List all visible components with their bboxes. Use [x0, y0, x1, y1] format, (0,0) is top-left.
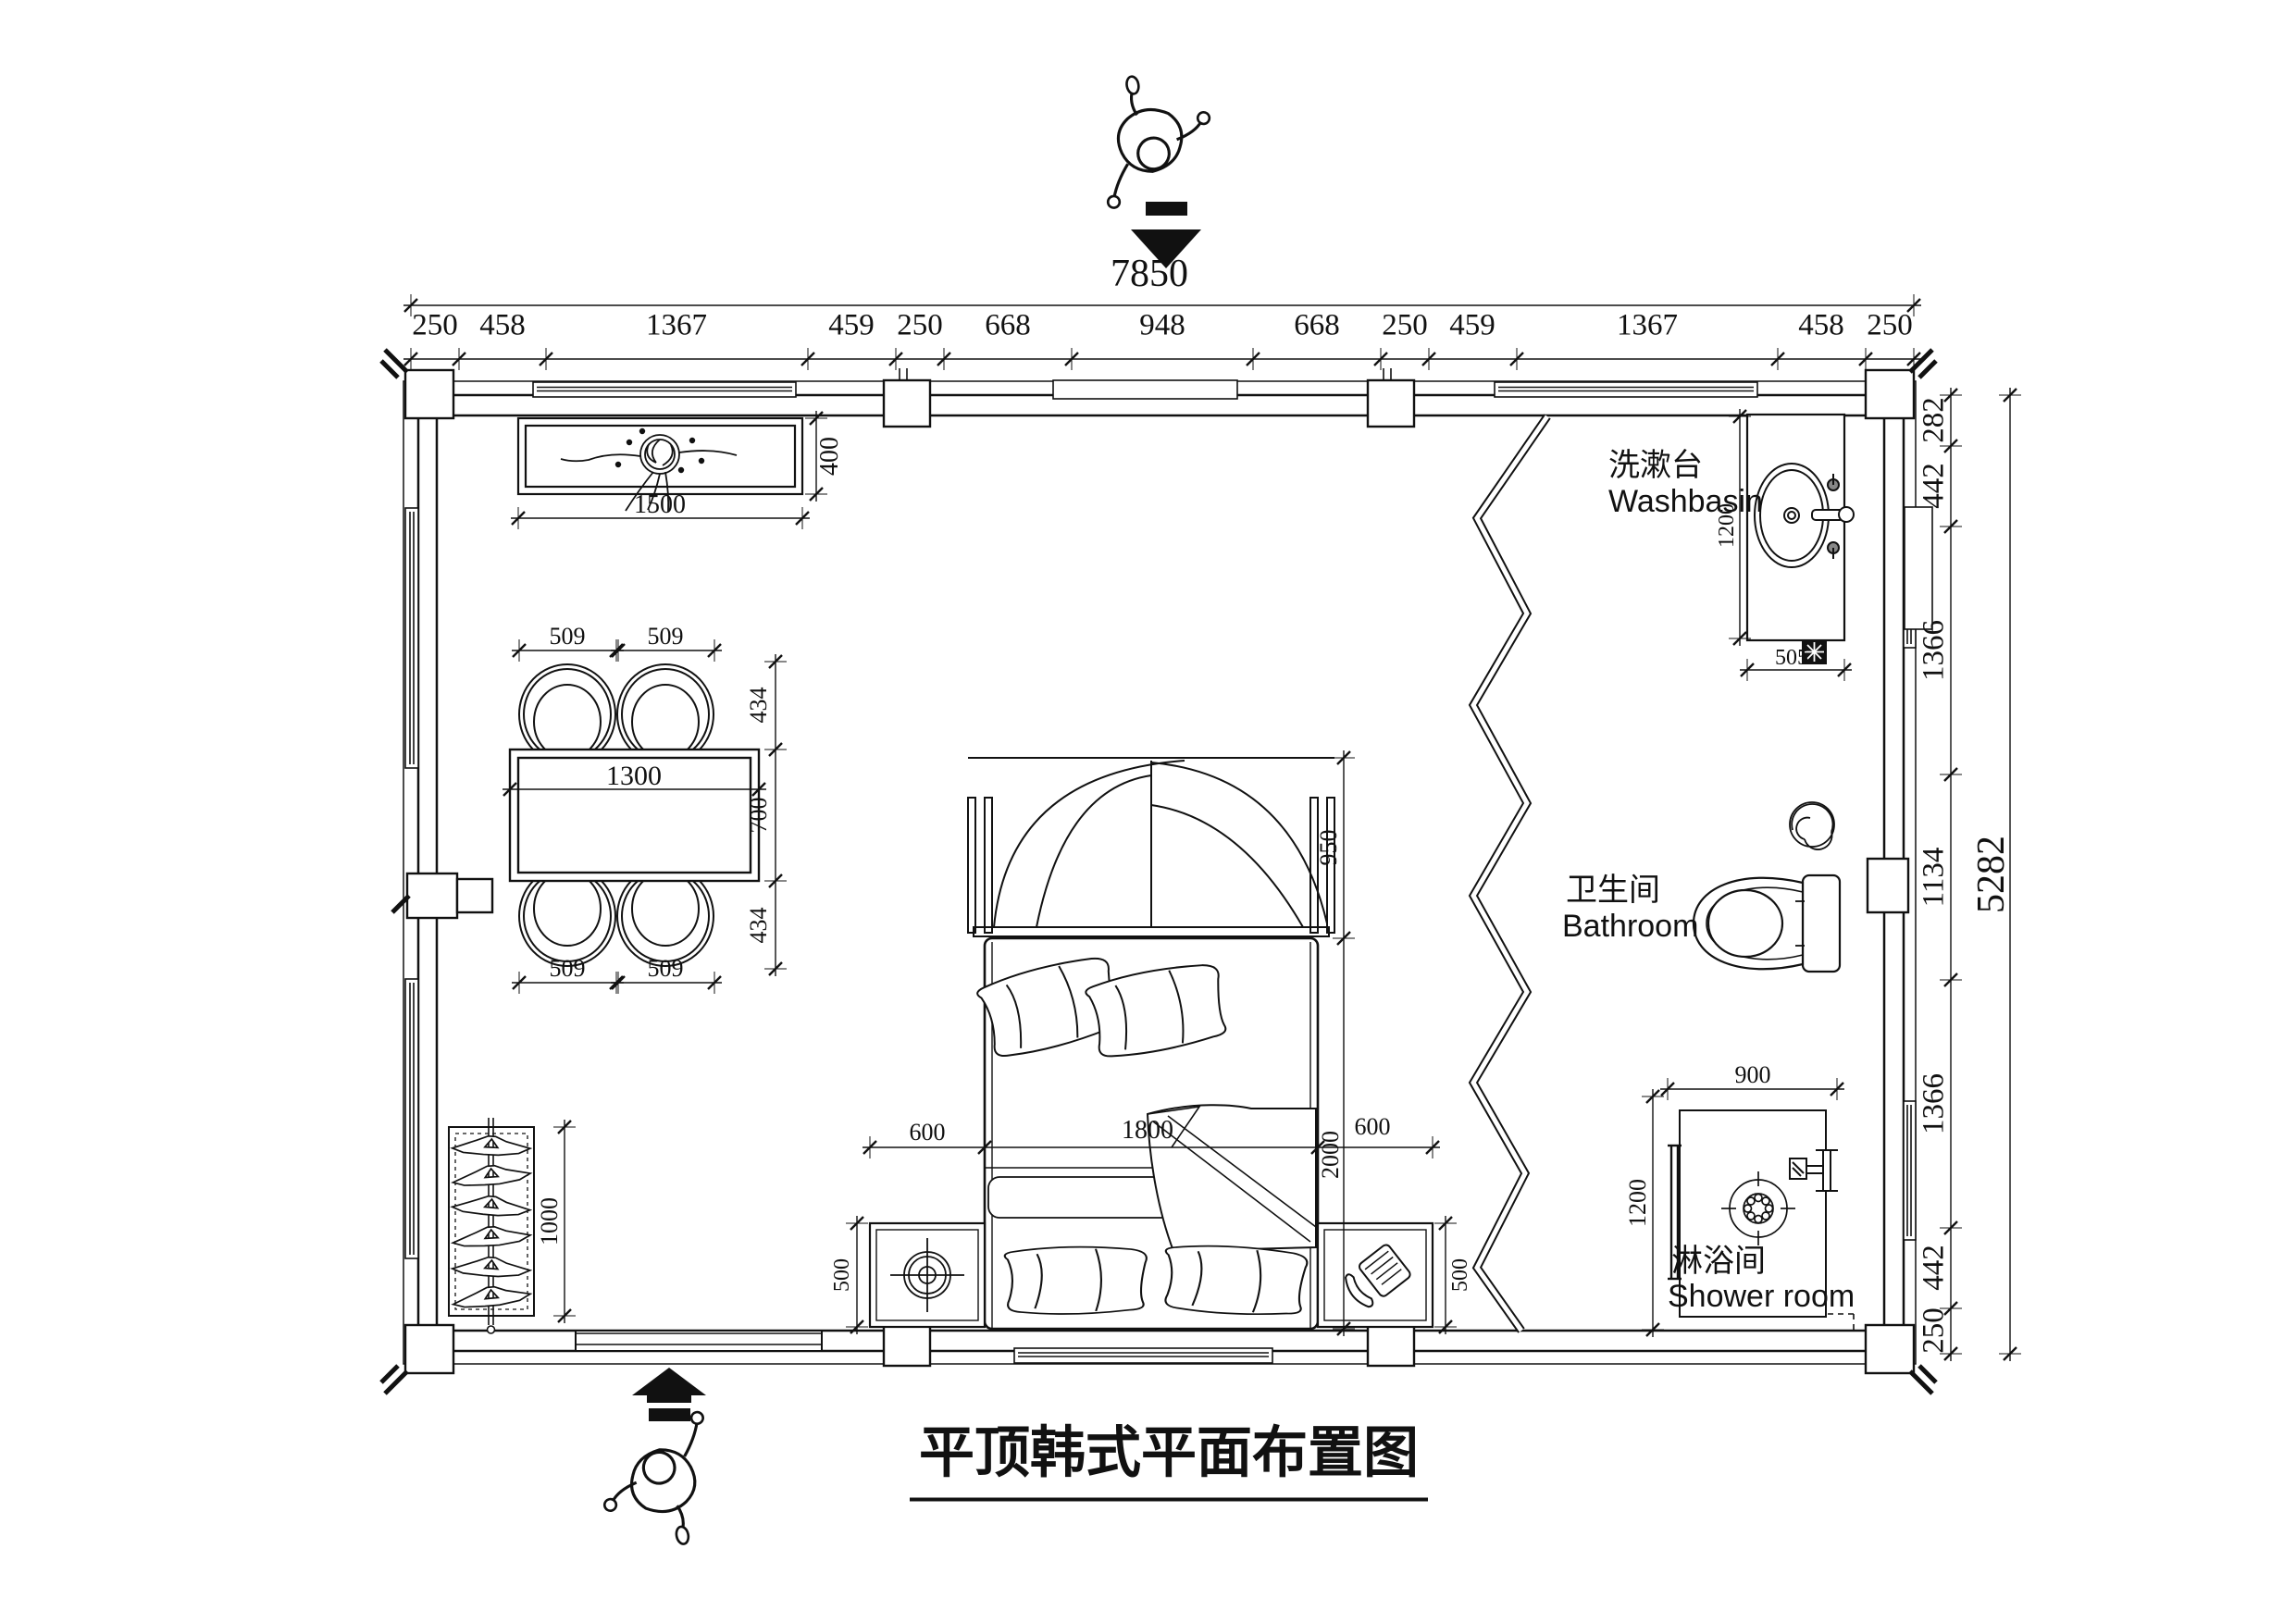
- dim-chair-bottom-right: 509: [648, 957, 684, 981]
- label-bathroom-en: Bathroom: [1562, 911, 1698, 942]
- dim-top-4: 250: [897, 311, 943, 341]
- fan-swirl-icon: [1790, 802, 1834, 849]
- dim-top-3: 459: [828, 311, 875, 341]
- dim-wardrobe-length: 1000: [538, 1197, 562, 1245]
- dim-top-12: 250: [1867, 311, 1913, 341]
- dim-chair-top-left: 509: [550, 625, 586, 649]
- dim-total-width: 7850: [1111, 254, 1188, 293]
- dim-top-0: 250: [412, 311, 458, 341]
- label-shower-zh: 淋浴间: [1671, 1245, 1766, 1277]
- dim-top-8: 250: [1382, 311, 1428, 341]
- dim-top-5: 668: [985, 311, 1031, 341]
- nightstand-right: [1318, 1223, 1433, 1327]
- dim-right-5: 442: [1919, 1245, 1950, 1291]
- dim-nightstand-right: 500: [1449, 1258, 1471, 1292]
- washbasin-counter: [1747, 415, 1854, 664]
- dim-bed-right-gap: 600: [1355, 1115, 1391, 1139]
- dim-chair-top-right: 509: [648, 625, 684, 649]
- wardrobe-rack: [449, 1118, 534, 1333]
- console-cabinet: [518, 418, 802, 494]
- dim-washbasin-width: 505: [1775, 647, 1808, 669]
- dim-bed-left-gap: 600: [910, 1121, 946, 1145]
- dim-console-depth: 400: [817, 437, 843, 476]
- dim-right-2: 1366: [1919, 620, 1950, 681]
- dim-dining-side-0: 434: [747, 688, 771, 724]
- dim-top-10: 1367: [1617, 311, 1678, 341]
- dim-bed-width: 1800: [1122, 1118, 1173, 1144]
- dim-top-7: 668: [1294, 311, 1340, 341]
- folded-runner: [988, 1177, 1175, 1218]
- folding-screen-partition: [1473, 416, 1547, 1331]
- dim-headboard: 950: [1317, 830, 1341, 866]
- dim-right-1: 442: [1919, 463, 1950, 509]
- dim-console-width: 1500: [634, 492, 686, 518]
- dim-chair-bottom-left: 509: [550, 957, 586, 981]
- dim-right-4: 1366: [1919, 1073, 1950, 1134]
- dim-table-width: 1300: [606, 762, 662, 790]
- dim-top-1: 458: [479, 311, 526, 341]
- entry-door-top: [1053, 380, 1237, 399]
- person-top-icon: [1087, 65, 1222, 209]
- plan-linework: [0, 0, 2296, 1623]
- dim-right-3: 1134: [1919, 848, 1950, 908]
- dim-bed-length: 2000: [1319, 1131, 1343, 1179]
- label-washbasin-zh: 洗漱台: [1608, 450, 1703, 481]
- dim-shower-width: 900: [1735, 1063, 1771, 1087]
- dim-total-height: 5282: [1972, 836, 2011, 913]
- label-shower-en: Shower room: [1668, 1281, 1855, 1312]
- label-bathroom-zh: 卫生间: [1566, 874, 1660, 906]
- floor-plan: 7850 5282 250 458 1367 459 250 668 948 6…: [0, 0, 2296, 1623]
- label-washbasin-en: Washbasin: [1608, 486, 1763, 517]
- nightstand-left: [870, 1223, 985, 1327]
- person-bottom-icon: [590, 1411, 728, 1558]
- dim-top-11: 458: [1798, 311, 1844, 341]
- dim-top-2: 1367: [646, 311, 707, 341]
- exterior-unit: [1905, 507, 1932, 629]
- dim-top-9: 459: [1449, 311, 1496, 341]
- bed-headboard-canopy: [968, 758, 1334, 936]
- plan-title: 平顶韩式平面布置图: [910, 1408, 1428, 1502]
- dim-dining-side-2: 434: [747, 908, 771, 944]
- dim-right-6: 250: [1919, 1307, 1950, 1354]
- toilet: [1694, 875, 1840, 972]
- dim-right-0: 282: [1919, 397, 1950, 443]
- dim-top-6: 948: [1139, 311, 1185, 341]
- dim-shower-depth: 1200: [1626, 1179, 1650, 1227]
- entry-door-bottom: [576, 1331, 822, 1351]
- dim-nightstand-left: 500: [831, 1258, 853, 1292]
- dim-dining-side-1: 700: [747, 798, 771, 834]
